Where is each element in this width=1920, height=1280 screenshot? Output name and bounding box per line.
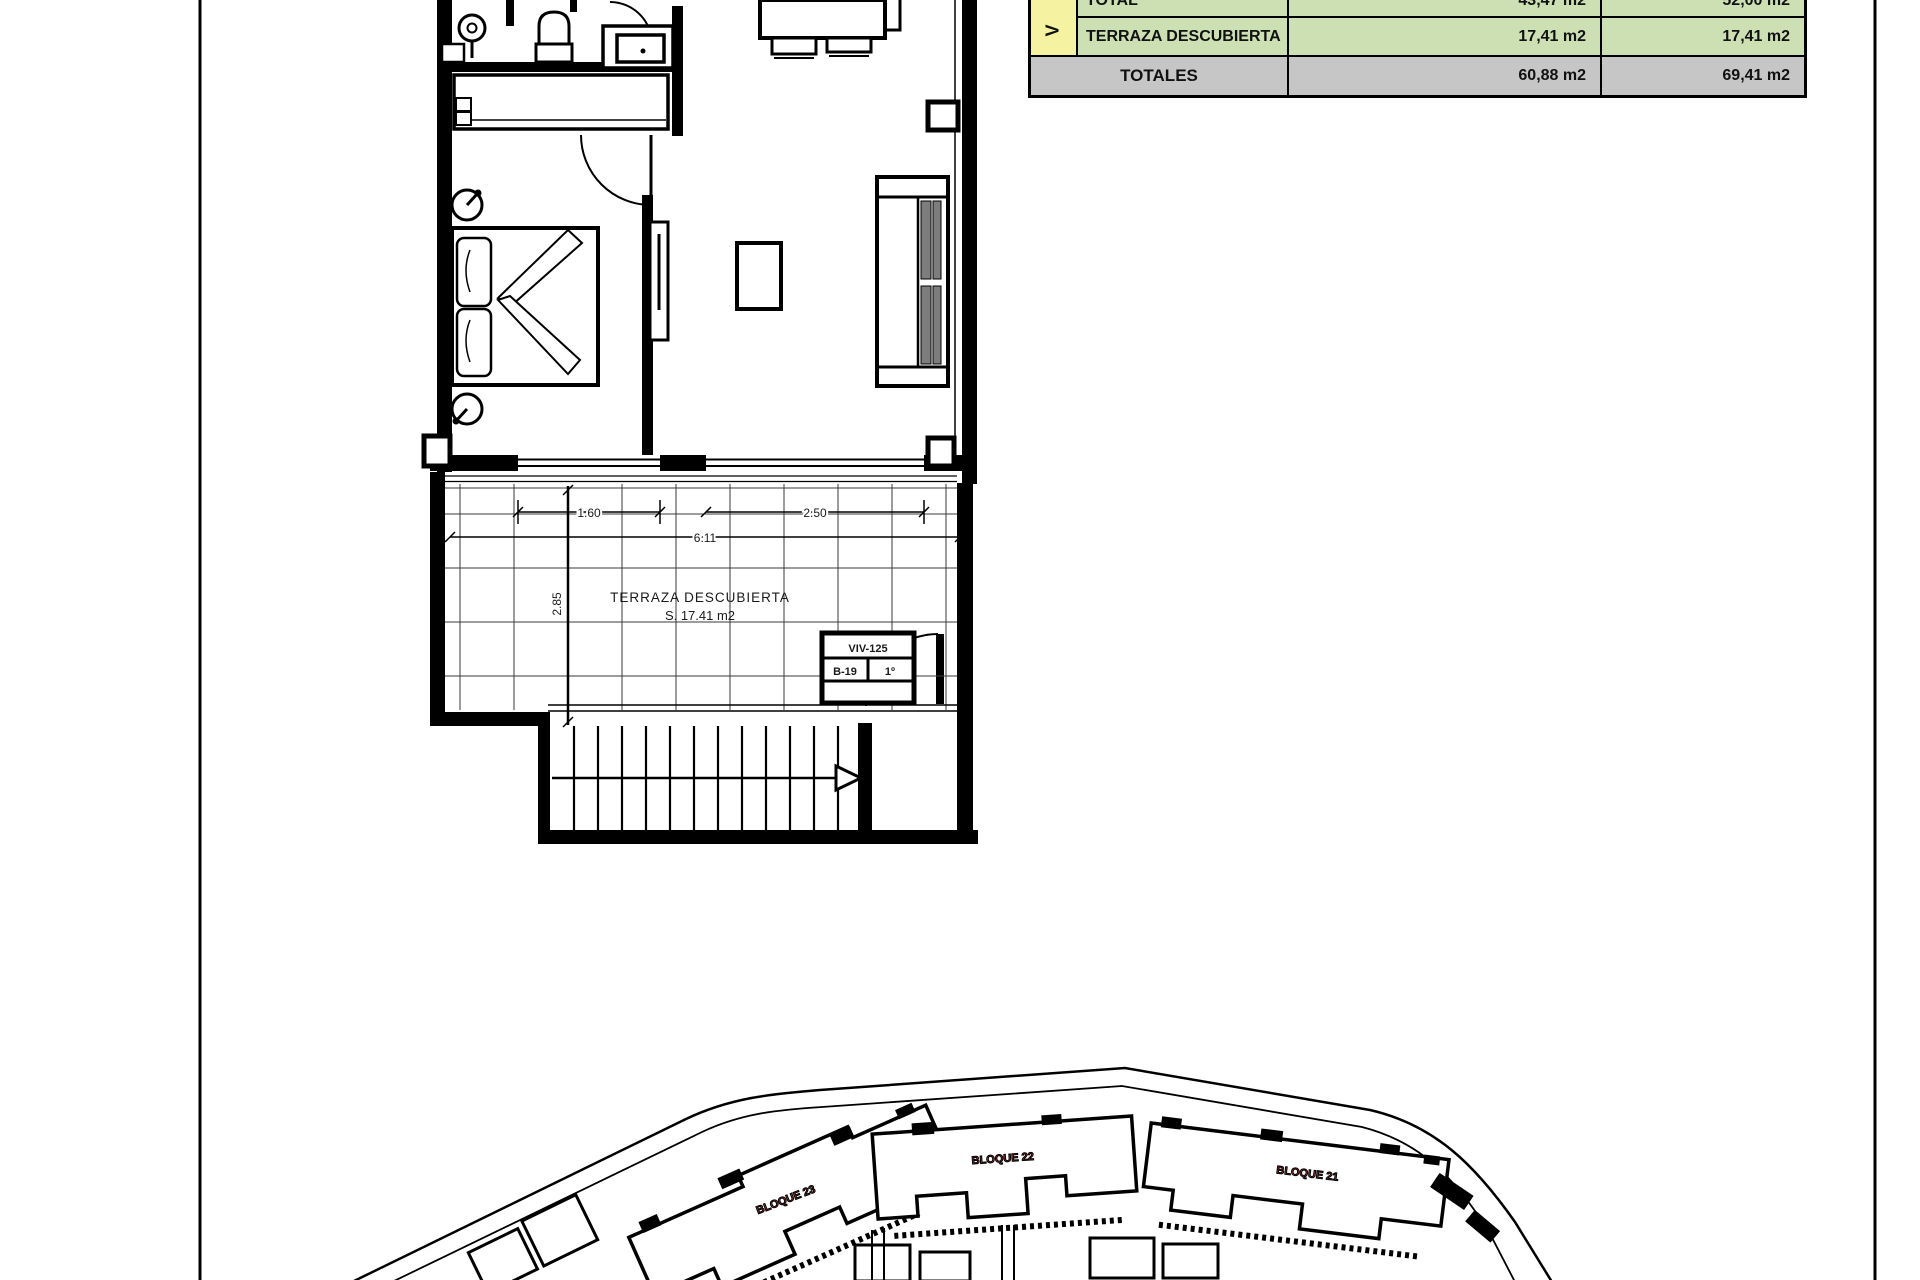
pillow <box>457 238 491 306</box>
bedroom-window <box>518 460 660 467</box>
terrace-label: TERRAZA DESCUBIERTA S. 17.41 m2 <box>610 590 790 623</box>
terrace-title: TERRAZA DESCUBIERTA <box>610 590 790 605</box>
stair-direction-arrow <box>836 766 861 790</box>
scanned-plan-page: { "page": { "background": "#ffffff", "bo… <box>0 0 1920 1280</box>
terrace-area: S. 17.41 m2 <box>665 608 735 623</box>
wall-pillar <box>928 102 958 130</box>
coffee-table <box>737 243 781 309</box>
unit-tag-box: VIV-125 B-19 1º <box>822 633 914 703</box>
wardrobe <box>454 75 668 129</box>
sofa <box>877 177 948 386</box>
pillow <box>457 309 491 376</box>
chair <box>827 38 871 52</box>
plan-canvas: 1.60 2.50 6.11 2.85 TERRAZA DESCUBIERTA … <box>0 0 1920 1280</box>
bedroom-door-arc <box>581 135 651 205</box>
bed <box>452 228 598 385</box>
dim-living-window: 2.50 <box>803 506 827 520</box>
bathroom <box>442 12 673 68</box>
wall-pillar <box>424 436 450 466</box>
dining-table <box>760 0 885 58</box>
dim-total-width: 6.11 <box>694 531 717 545</box>
toilet-icon <box>536 12 572 62</box>
dim-bedroom-window: 1.60 <box>577 506 601 520</box>
site-plan: BLOQUE 23 BLOQUE 22 BLOQUE 21 <box>352 1068 1552 1280</box>
sliding-door-panel <box>650 222 668 340</box>
unit-tag-cell-b: 1º <box>885 666 895 678</box>
sink-counter-icon <box>603 26 673 68</box>
unit-tag-id: VIV-125 <box>848 643 887 655</box>
chair <box>772 38 816 54</box>
dim-terrace-depth: 2.85 <box>550 592 564 616</box>
stairs <box>552 726 861 830</box>
site-block-21 <box>1139 1115 1450 1259</box>
terrace-edge-rails <box>548 705 957 711</box>
living-window <box>706 460 924 467</box>
window-sills <box>445 476 957 482</box>
wall-pillar <box>928 438 954 466</box>
unit-tag-cell-a: B-19 <box>833 666 857 678</box>
